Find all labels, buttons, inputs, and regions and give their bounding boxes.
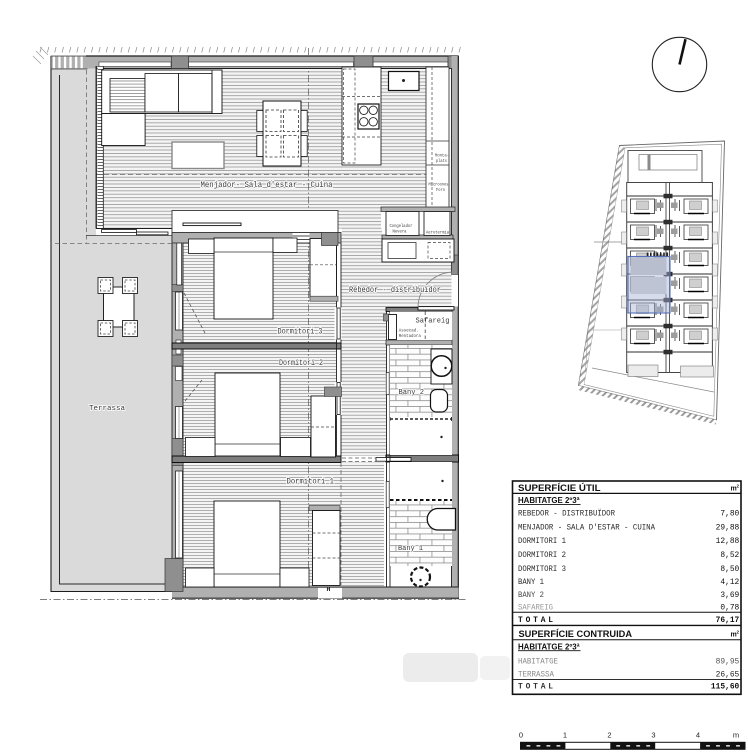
svg-text:Rentadora: Rentadora [399,333,421,339]
svg-text:DORMITORI 1: DORMITORI 1 [518,537,566,546]
svg-text:89,95: 89,95 [716,657,740,666]
svg-text:0: 0 [519,731,523,740]
svg-text:0,78: 0,78 [720,604,739,613]
svg-text:76,17: 76,17 [716,616,740,625]
svg-text:TOTAL: TOTAL [518,616,553,625]
svg-text:DORMITORI 2: DORMITORI 2 [518,551,566,560]
svg-text:Bany 1: Bany 1 [398,545,423,553]
svg-text:plats: plats [436,158,447,164]
svg-text:3: 3 [651,731,655,740]
svg-text:Microones: Microones [429,182,449,188]
svg-text:Assecad.: Assecad. [399,328,419,334]
svg-text:Aerotermia: Aerotermia [426,230,449,236]
svg-text:4: 4 [696,731,700,740]
svg-text:m: m [733,731,739,740]
svg-text:2: 2 [737,484,740,489]
svg-text:SAFAREIG: SAFAREIG [518,604,553,613]
svg-text:1: 1 [563,731,567,740]
svg-text:8,52: 8,52 [720,551,739,560]
svg-text:Monta-: Monta- [435,153,449,159]
svg-text:Bany 2: Bany 2 [399,389,425,397]
svg-text:SUPERFÍCIE CONTRUIDA: SUPERFÍCIE CONTRUIDA [519,629,633,639]
svg-text:29,88: 29,88 [716,523,740,532]
svg-text:TOTAL: TOTAL [518,683,553,692]
svg-text:4,12: 4,12 [720,578,739,587]
svg-text:HABITATGE 2º3ª: HABITATGE 2º3ª [518,496,580,505]
svg-text:REBEDOR - DISTRIBUÏDOR: REBEDOR - DISTRIBUÏDOR [518,509,615,518]
svg-text:Congelador: Congelador [390,223,413,229]
svg-text:BANY 1: BANY 1 [518,578,544,587]
svg-text:Rebedor - distribuïdor: Rebedor - distribuïdor [349,286,441,295]
svg-text:H: H [327,586,331,593]
svg-text:Forn: Forn [436,187,445,193]
svg-text:12,88: 12,88 [716,537,740,546]
svg-text:115,60: 115,60 [711,683,740,692]
svg-text:8,50: 8,50 [720,565,739,574]
svg-text:Dormitori 2: Dormitori 2 [279,359,323,368]
svg-text:2: 2 [737,629,740,634]
svg-text:Safareig: Safareig [416,318,450,326]
svg-text:HABITATGE 2º3ª: HABITATGE 2º3ª [518,642,580,651]
svg-text:Dormitori 3: Dormitori 3 [278,328,323,337]
svg-text:7,80: 7,80 [720,509,739,518]
svg-text:MENJADOR - SALA D'ESTAR - CUIN: MENJADOR - SALA D'ESTAR - CUINA [518,523,655,532]
svg-text:Nevera: Nevera [393,229,407,235]
svg-text:DORMITORI 3: DORMITORI 3 [518,565,566,574]
svg-text:TERRASSA: TERRASSA [518,670,554,679]
svg-text:2: 2 [607,731,611,740]
svg-text:3,69: 3,69 [720,591,739,600]
svg-text:26,65: 26,65 [716,670,740,679]
svg-text:Terrassa: Terrassa [89,405,125,413]
svg-text:Dormitori 1: Dormitori 1 [287,478,335,487]
svg-text:HABITATGE: HABITATGE [518,657,558,666]
svg-text:SUPERFÍCIE ÚTIL: SUPERFÍCIE ÚTIL [518,482,601,493]
svg-text:BANY 2: BANY 2 [518,591,544,600]
svg-text:Menjador- Sala d'estar - Cuina: Menjador- Sala d'estar - Cuina [201,181,333,190]
